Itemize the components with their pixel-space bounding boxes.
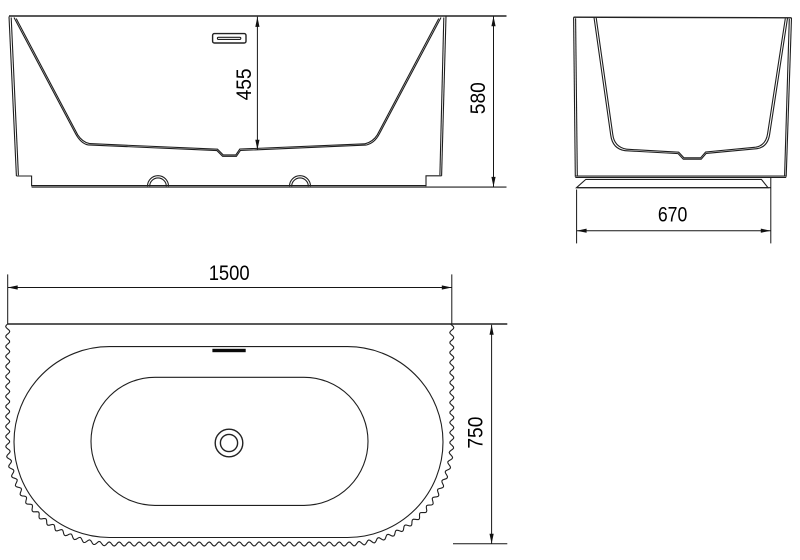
svg-text:455: 455 bbox=[232, 68, 256, 100]
svg-text:580: 580 bbox=[466, 82, 490, 114]
svg-text:670: 670 bbox=[658, 202, 688, 226]
svg-text:750: 750 bbox=[464, 417, 488, 449]
svg-text:1500: 1500 bbox=[209, 261, 250, 285]
